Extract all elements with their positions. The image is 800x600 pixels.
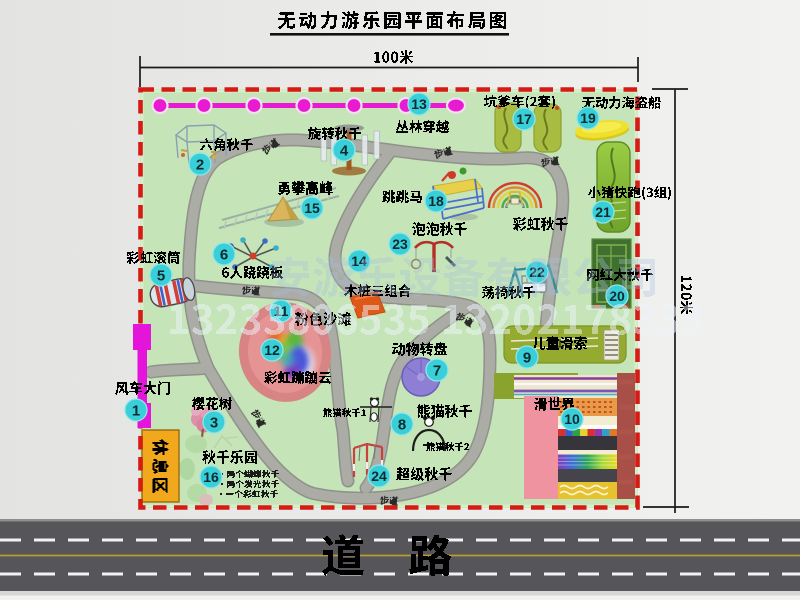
svg-text:17: 17: [516, 111, 532, 127]
svg-text:23: 23: [392, 236, 408, 252]
svg-text:6: 6: [220, 246, 228, 263]
svg-text:1: 1: [132, 402, 140, 419]
svg-text:4: 4: [340, 142, 349, 159]
svg-text:18: 18: [428, 193, 444, 209]
svg-text:21: 21: [595, 204, 611, 220]
svg-text:2: 2: [196, 156, 204, 173]
svg-text:10: 10: [564, 411, 580, 427]
svg-text:9: 9: [523, 349, 531, 366]
svg-text:7: 7: [433, 362, 441, 379]
svg-text:19: 19: [580, 110, 596, 126]
svg-text:15: 15: [304, 200, 320, 216]
svg-text:8: 8: [398, 416, 406, 433]
svg-text:16: 16: [203, 469, 219, 485]
svg-text:24: 24: [371, 468, 387, 484]
svg-text:5: 5: [157, 267, 165, 284]
svg-text:3: 3: [210, 414, 218, 431]
svg-text:13: 13: [411, 96, 427, 112]
svg-text:12: 12: [264, 342, 280, 358]
